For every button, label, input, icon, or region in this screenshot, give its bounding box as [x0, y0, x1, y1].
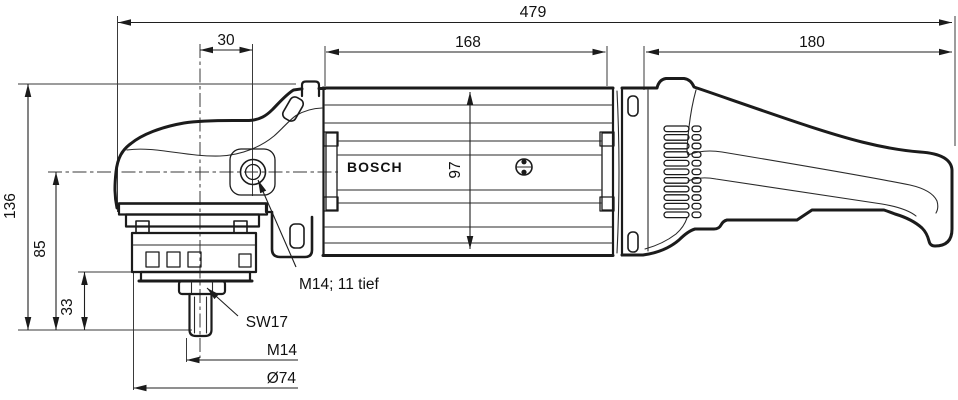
- dim-body-height-label: 97: [447, 161, 464, 178]
- dimension-body-height: 97: [447, 92, 470, 249]
- dimension-spindle-thread: M14: [187, 342, 299, 360]
- dim-flange-diameter-label: Ø74: [267, 370, 297, 387]
- dimension-motor-length: 168: [326, 34, 606, 52]
- screw-symbol: [516, 159, 532, 175]
- callout-wrench-size-label: SW17: [246, 314, 288, 331]
- clamp-band-upper: [119, 204, 267, 215]
- callout-side-handle-thread: M14; 11 tief: [258, 180, 380, 293]
- spindle-lock-button: [302, 82, 319, 97]
- housing-screw-top: [628, 96, 638, 116]
- dimension-handle-length: 180: [646, 34, 952, 52]
- dim-spindle-thread-label: M14: [267, 342, 298, 359]
- dimension-spindle-section: 33: [59, 272, 85, 330]
- gear-head: [115, 82, 325, 258]
- housing-screw-bottom: [628, 232, 638, 252]
- spindle-nut: [179, 281, 225, 294]
- dim-total-height-label: 136: [2, 193, 19, 219]
- dim-spindle-section-label: 33: [59, 298, 76, 315]
- dimension-axis-to-pad: 85: [32, 172, 56, 330]
- brand-logo: BOSCH: [347, 159, 403, 175]
- callout-side-handle-thread-label: M14; 11 tief: [299, 276, 380, 293]
- dimension-flange-diameter: Ø74: [134, 370, 299, 388]
- clamp-ring-rear: [602, 133, 613, 210]
- dim-total-length-label: 479: [520, 4, 547, 21]
- technical-drawing-page: BOSCH: [0, 0, 958, 400]
- dim-motor-length-label: 168: [455, 34, 481, 51]
- dimension-total-height: 136: [2, 84, 28, 330]
- dimension-total-length: 479: [118, 4, 952, 23]
- handle: [622, 79, 952, 256]
- motor-housing: BOSCH: [323, 88, 638, 256]
- dimension-head-offset: 30: [200, 32, 253, 50]
- dim-axis-to-pad-label: 85: [32, 240, 49, 257]
- dim-head-offset-label: 30: [217, 32, 235, 49]
- dim-handle-length-label: 180: [799, 34, 825, 51]
- mount-bracket: [272, 212, 312, 257]
- vent-louvres: [664, 126, 701, 218]
- tool-dimension-drawing: BOSCH: [0, 0, 958, 400]
